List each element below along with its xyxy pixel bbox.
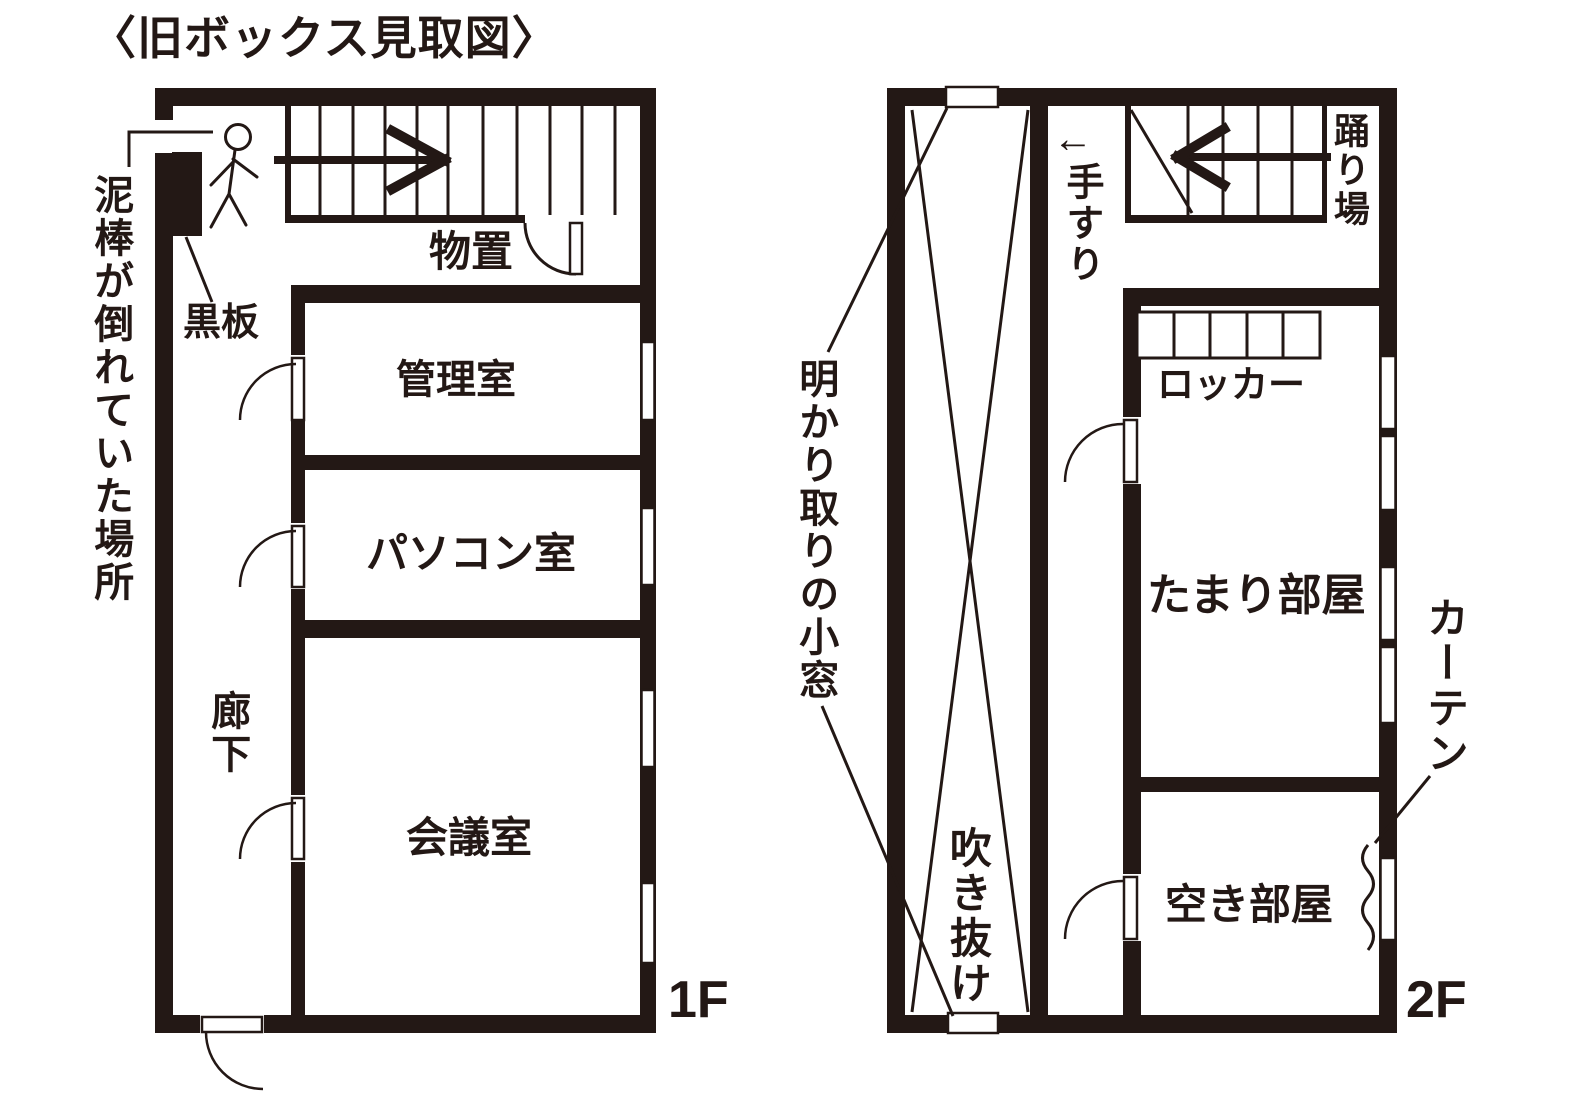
stairs-direction-arrow-1f (278, 131, 445, 189)
curtain-squiggle-icon (1363, 845, 1374, 950)
skylight-label: 明かり取りの小窓 (793, 358, 836, 702)
stick-figure-icon (211, 125, 257, 228)
atrium-label: 吹き抜け (945, 826, 990, 1006)
floor2-label: 2F (1406, 972, 1467, 1028)
pc-room-label: パソコン室 (366, 531, 576, 576)
window-1f-4 (642, 883, 655, 963)
blackboard-label: 黒板 (183, 303, 259, 344)
entrance-door (200, 1014, 264, 1089)
storage-door (525, 223, 582, 274)
admin-room-door (240, 355, 305, 421)
admin-room-label: 管理室 (396, 359, 516, 402)
empty-room-door (1065, 874, 1141, 941)
locker-label: ロッカー (1157, 365, 1305, 405)
tamari-room-label: たまり部屋 (1147, 572, 1366, 620)
blackboard-leader-line (186, 237, 212, 302)
floor1-plan (129, 88, 656, 1089)
window-2f-2 (1381, 436, 1396, 510)
page-title: 〈旧ボックス見取図〉 (90, 14, 559, 64)
window-1f-3 (642, 690, 655, 767)
window-1f-2 (642, 508, 655, 585)
window-1f-1 (642, 342, 655, 420)
tamari-room-door (1065, 417, 1141, 484)
window-2f-1 (1381, 356, 1396, 429)
window-2f-3 (1381, 567, 1396, 640)
floor1-label: 1F (668, 972, 729, 1028)
curtain-label: カーテン (1422, 596, 1467, 776)
floorplan-page: 〈旧ボックス見取図〉 泥棒が倒れていた場所 黒板 物置 管理室 パソコン室 会議… (0, 0, 1579, 1119)
handrail-label: 手すり (1060, 162, 1101, 285)
corridor-label: 廊下 (205, 690, 248, 776)
skylight-window-bottom (948, 1013, 998, 1033)
pc-room-door (240, 523, 305, 589)
stairs-direction-arrow-2f (1177, 129, 1327, 185)
thief-spot-label: 泥棒が倒れていた場所 (88, 174, 131, 604)
storage-room-label: 物置 (429, 229, 513, 274)
empty-room-label: 空き部屋 (1165, 882, 1333, 927)
floor1-stairs (285, 106, 615, 223)
landing-label: 踊り場 (1329, 112, 1368, 229)
skylight-window-top (946, 87, 998, 107)
meeting-room-door (240, 795, 305, 862)
window-2f-4 (1381, 647, 1396, 723)
blackboard-icon (172, 152, 202, 236)
meeting-room-label: 会議室 (406, 815, 532, 860)
locker-icon (1137, 312, 1320, 358)
handrail-arrow: ← (1053, 118, 1093, 161)
window-2f-5 (1381, 858, 1396, 940)
